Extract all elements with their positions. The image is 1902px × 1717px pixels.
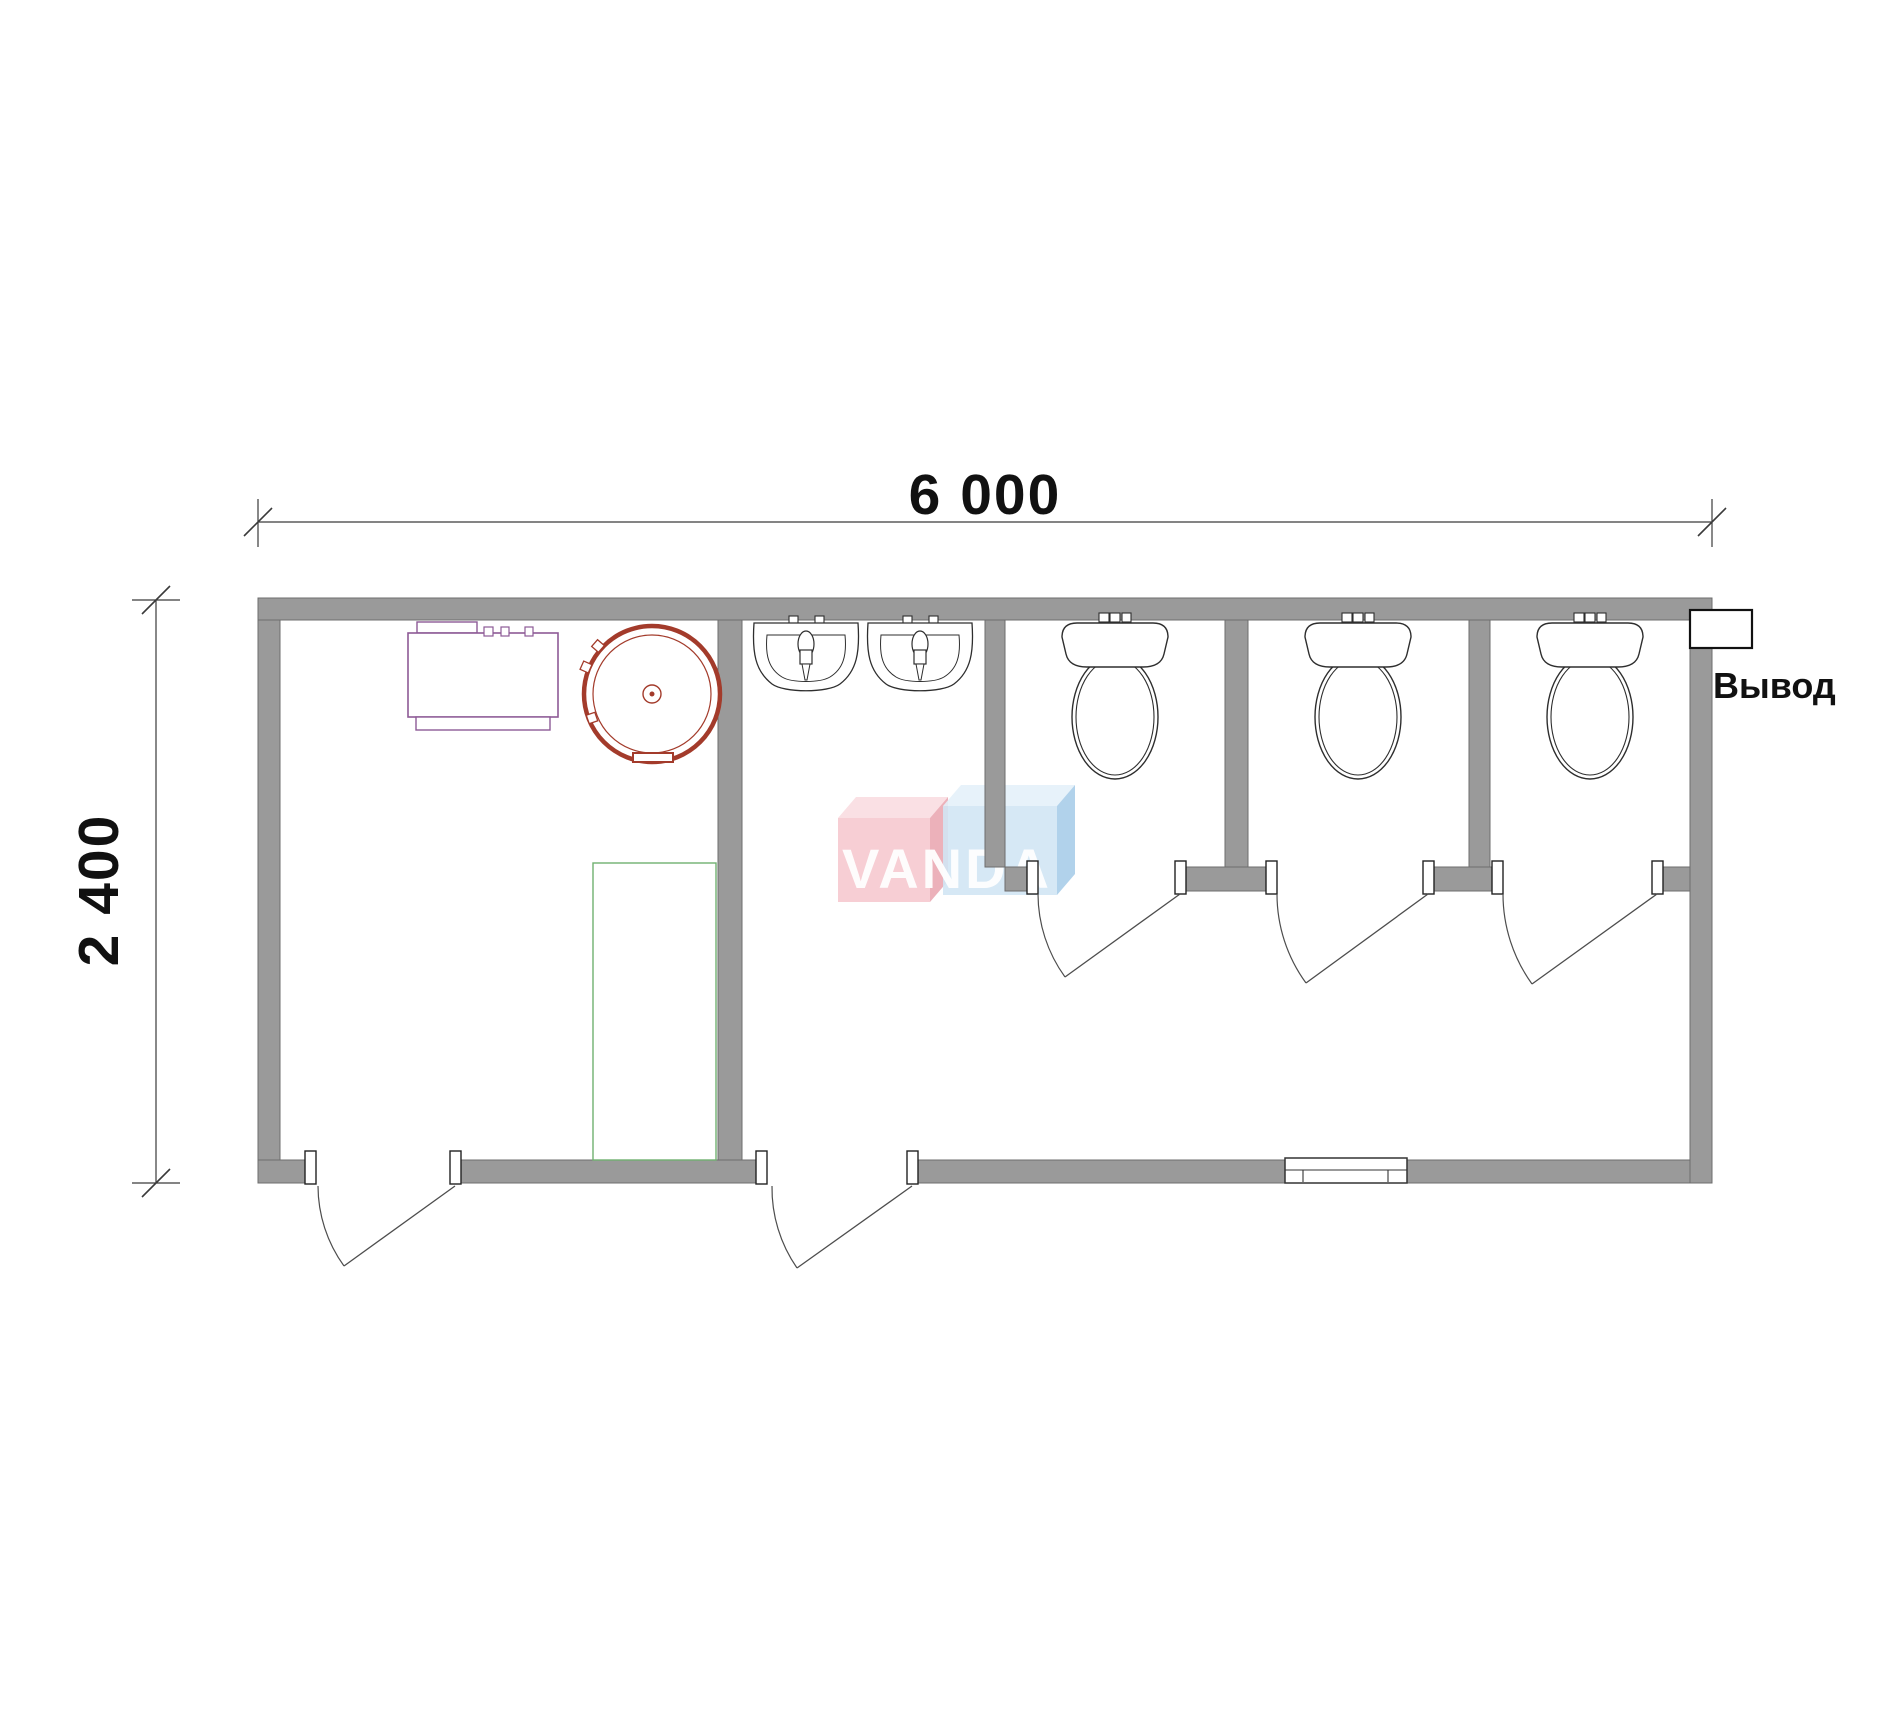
boiler-knob-1 (484, 627, 493, 636)
toilet1-button-2 (1110, 613, 1120, 622)
door-jamb-room1-left (305, 1151, 316, 1184)
door-jamb-stall2-right (1423, 861, 1434, 894)
water-tank-hub-dot (650, 692, 655, 697)
stall-front-wall-1 (1186, 867, 1266, 891)
boiler-knob-3 (525, 627, 533, 636)
door-swing-room1 (318, 1186, 344, 1266)
door-leaf-stall2 (1306, 894, 1428, 983)
sink2-faucet-body (914, 650, 926, 664)
door-leaf-stall3 (1532, 894, 1657, 984)
stall-front-wall-2 (1434, 867, 1492, 891)
door-swing-stall1 (1038, 894, 1065, 977)
watermark-box-blue-top (943, 785, 1075, 806)
dim-height-label: 2 400 (67, 814, 131, 967)
door-swing-stall3 (1503, 894, 1532, 984)
toilet1-tank (1062, 623, 1168, 667)
stall-front-wall-3 (1663, 867, 1690, 891)
sink1-faucet-body (800, 650, 812, 664)
watermark-box-pink-top (838, 797, 948, 818)
shower-tray (593, 863, 716, 1160)
toilet3-button-3 (1597, 613, 1606, 622)
water-tank-tab-3 (586, 712, 597, 723)
toilet2-button-3 (1365, 613, 1374, 622)
toilet3-button-1 (1574, 613, 1584, 622)
toilet3-tank (1537, 623, 1643, 667)
boiler-body (408, 633, 558, 717)
door-leaf-room1 (344, 1186, 455, 1266)
toilet1-button-3 (1122, 613, 1131, 622)
floorplan-page: VANDAВывод6 0002 400 (0, 0, 1902, 1717)
toilet3-bowl-outer (1547, 655, 1633, 779)
door-jamb-stall2-left (1266, 861, 1277, 894)
door-jamb-stall1-right (1175, 861, 1186, 894)
toilet2-tank (1305, 623, 1411, 667)
door-jamb-room2-right (907, 1151, 918, 1184)
toilet1-bowl-outer (1072, 655, 1158, 779)
boiler-back-plate (417, 622, 477, 633)
outlet-box (1690, 610, 1752, 648)
outer-wall-top (258, 598, 1712, 620)
toilet3-button-2 (1585, 613, 1595, 622)
washroom-stall-wall (985, 620, 1005, 867)
door-swing-room2 (772, 1186, 797, 1268)
dim-width-label: 6 000 (909, 463, 1062, 527)
boiler-base (416, 717, 550, 730)
toilet1-button-1 (1099, 613, 1109, 622)
floor-plan: VANDAВывод6 0002 400 (0, 0, 1902, 1717)
washroom-stall-wall-stub (1005, 867, 1027, 891)
outer-wall-bottom-seg-2 (461, 1160, 767, 1183)
door-jamb-stall3-left (1492, 861, 1503, 894)
stall-partition-1 (1225, 620, 1248, 867)
door-leaf-stall1 (1065, 894, 1180, 977)
outer-wall-right (1690, 620, 1712, 1183)
door-jamb-stall1-left (1027, 861, 1038, 894)
toilet2-bowl-outer (1315, 655, 1401, 779)
door-jamb-stall3-right (1652, 861, 1663, 894)
toilet2-button-1 (1342, 613, 1352, 622)
outer-wall-bottom-seg-4 (1407, 1160, 1690, 1183)
outer-wall-left (258, 620, 280, 1183)
outer-wall-bottom-seg-3 (918, 1160, 1285, 1183)
water-tank-bracket (633, 753, 673, 762)
outlet-label: Вывод (1713, 665, 1836, 706)
toilet2-button-2 (1353, 613, 1363, 622)
door-swing-stall2 (1277, 894, 1306, 983)
stall-partition-2 (1469, 620, 1490, 867)
door-leaf-room2 (797, 1186, 912, 1268)
door-jamb-room2-left (756, 1151, 767, 1184)
boiler-knob-2 (501, 627, 509, 636)
door-jamb-room1-right (450, 1151, 461, 1184)
outer-wall-bottom-seg-1 (258, 1160, 305, 1183)
